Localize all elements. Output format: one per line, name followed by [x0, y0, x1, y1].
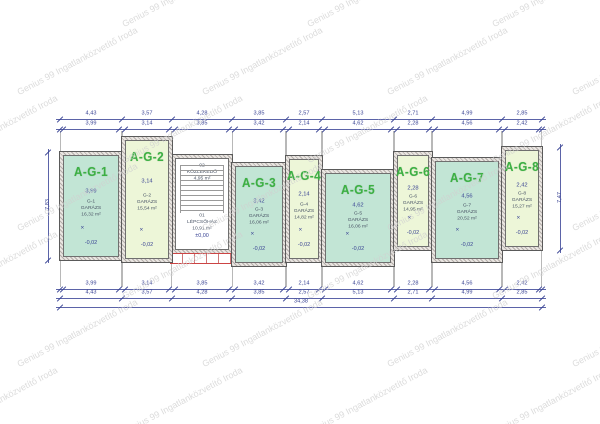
dimension-value: 3,99	[77, 121, 104, 127]
dimension-value: 2,71	[399, 111, 426, 117]
dimension-value: 3,57	[133, 290, 160, 296]
dimension-value: 2,71	[399, 290, 426, 296]
dimension-value: 4,99	[453, 290, 480, 296]
extension-line	[322, 266, 323, 287]
unit-label: A-G-7	[450, 170, 484, 185]
unit-block-a-g-4: A-G-42,14G-4GARÁZS14,82 m²-0,02×	[286, 156, 322, 262]
watermark-text: Genius 99 Ingatlanközvetítő Iroda	[491, 365, 600, 424]
extension-line	[122, 262, 123, 287]
unit-label: A-G-5	[341, 182, 375, 197]
dimension-value: 3,85	[188, 121, 215, 127]
room-code: G-7	[457, 202, 477, 208]
unit-label: A-G-4	[287, 168, 321, 183]
room-name: GARÁZS	[137, 199, 157, 205]
room-name: GARÁZS	[348, 217, 368, 223]
entry-steps	[170, 253, 234, 264]
dimension-value: 2,57	[290, 111, 317, 117]
interior-width-dimension: 4,56	[461, 192, 472, 198]
unit-fill: A-G-62,28G-6GARÁZS14,95 m²-0,02×	[397, 155, 429, 247]
room-label: G-6GARÁZS14,95 m²	[403, 193, 423, 212]
watermark-text: Genius 99 Ingatlanközvetítő Iroda	[0, 0, 59, 29]
extension-line	[502, 250, 503, 287]
unit-label: A-G-8	[505, 159, 539, 174]
extension-line	[60, 131, 61, 152]
dimension-value: 3,14	[133, 281, 160, 287]
door-swing-icon: ×	[299, 226, 303, 233]
room-name: GARÁZS	[81, 205, 101, 211]
room-label: G-1GARÁZS16,32 m²	[81, 198, 101, 217]
floor-level-mark: -0,02	[352, 245, 364, 251]
door-swing-icon: ×	[139, 226, 143, 233]
dimension-value: 3,85	[245, 111, 272, 117]
unit-fill: A-G-74,56G-7GARÁZS20,52 m²-0,02×	[435, 161, 499, 259]
stair-fill: 02 KÖZLEKEDŐ 4,95 m² 01 LÉPCSŐHÁZ 10,91 …	[175, 158, 229, 250]
interior-width-dimension: 4,62	[352, 202, 363, 208]
room-code: G-2	[137, 192, 157, 198]
floor-level-mark: -0,02	[516, 229, 528, 235]
stair-mid-room-name: LÉPCSŐHÁZ	[187, 219, 217, 225]
stair-mid-room-label: 01 LÉPCSŐHÁZ 10,91 m²	[187, 212, 217, 231]
door-swing-icon: ×	[250, 230, 254, 237]
floor-level-mark: -0,02	[85, 239, 97, 245]
dimension-value: 4,28	[188, 111, 215, 117]
extension-line	[232, 266, 233, 287]
extension-line	[502, 131, 503, 147]
dimension-value: 3,42	[245, 121, 272, 127]
watermark-text: Genius 99 Ingatlanközvetítő Iroda	[121, 365, 245, 424]
watermark-text: Genius 99 Ingatlanközvetítő Iroda	[571, 297, 600, 369]
stair-block: 02 KÖZLEKEDŐ 4,95 m² 01 LÉPCSŐHÁZ 10,91 …	[172, 155, 232, 253]
extension-line	[394, 131, 395, 152]
watermark-text: Genius 99 Ingatlanközvetítő Iroda	[571, 161, 600, 233]
interior-width-dimension: 2,14	[298, 191, 309, 197]
dimension-value: 3,42	[245, 281, 272, 287]
extension-line	[432, 262, 433, 287]
unit-block-a-g-3: A-G-33,42G-3GARÁZS16,06 m²-0,02×	[232, 163, 286, 266]
room-area: 16,32 m²	[81, 211, 101, 217]
dimension-chain-line	[56, 129, 546, 130]
watermark-text: Genius 99 Ingatlanközvetítő Iroda	[201, 25, 325, 97]
dimension-value: 2,14	[290, 281, 317, 287]
watermark-text: Genius 99 Ingatlanközvetítő Iroda	[386, 25, 510, 97]
watermark-text: Genius 99 Ingatlanközvetítő Iroda	[0, 365, 59, 424]
room-area: 15,54 m²	[137, 205, 157, 211]
unit-block-a-g-2: A-G-23,14G-2GARÁZS15,54 m²-0,02×	[122, 137, 172, 262]
room-area: 14,95 m²	[403, 206, 423, 212]
total-dimension-value: 34,38	[287, 299, 314, 305]
unit-fill: A-G-13,99G-1GARÁZS16,32 m²-0,02×	[63, 155, 119, 257]
dimension-value: 3,99	[77, 281, 104, 287]
stair-level-mark: ±0,00	[195, 232, 209, 238]
extension-line	[171, 262, 172, 287]
floor-level-mark: -0,02	[298, 241, 310, 247]
dimension-value: 3,85	[188, 281, 215, 287]
room-label: G-2GARÁZS15,54 m²	[137, 192, 157, 211]
unit-label: A-G-2	[130, 149, 164, 164]
unit-label: A-G-6	[396, 164, 430, 179]
extension-line	[541, 250, 542, 287]
dimension-value: 3,85	[245, 290, 272, 296]
dimension-value: 2,28	[399, 121, 426, 127]
floor-level-mark: -0,02	[407, 229, 419, 235]
watermark-text: Genius 99 Ingatlanközvetítő Iroda	[306, 365, 430, 424]
extension-line	[541, 131, 542, 147]
interior-width-dimension: 2,42	[516, 181, 527, 187]
total-dimension-line	[56, 307, 546, 308]
unit-label: A-G-3	[242, 175, 276, 190]
unit-fill: A-G-42,14G-4GARÁZS14,82 m²-0,02×	[289, 159, 319, 259]
watermark-text: Genius 99 Ingatlanközvetítő Iroda	[121, 0, 245, 29]
extension-line	[394, 250, 395, 287]
door-swing-icon: ×	[455, 226, 459, 233]
room-label: G-3GARÁZS16,06 m²	[249, 207, 269, 226]
interior-width-dimension: 3,42	[253, 197, 264, 203]
watermark-text: Genius 99 Ingatlanközvetítő Iroda	[0, 229, 59, 301]
room-area: 16,06 m²	[249, 220, 269, 226]
dimension-value: 4,56	[453, 121, 480, 127]
interior-width-dimension: 3,99	[85, 187, 96, 193]
watermark-text: Genius 99 Ingatlanközvetítő Iroda	[491, 0, 600, 29]
watermark-text: Genius 99 Ingatlanközvetítő Iroda	[0, 93, 59, 165]
floor-level-mark: -0,02	[141, 241, 153, 247]
room-label: G-4GARÁZS14,82 m²	[294, 201, 314, 220]
dimension-value: 4,43	[77, 290, 104, 296]
unit-block-a-g-1: A-G-13,99G-1GARÁZS16,32 m²-0,02×	[60, 152, 122, 260]
watermark-text: Genius 99 Ingatlanközvetítő Iroda	[306, 0, 430, 29]
door-swing-icon: ×	[81, 224, 85, 231]
dimension-value: 2,28	[399, 281, 426, 287]
extension-line	[60, 260, 61, 287]
dimension-value: 3,14	[133, 121, 160, 127]
stair-mid-room-area: 10,91 m²	[187, 225, 217, 231]
dimension-value: 4,56	[453, 281, 480, 287]
dimension-value: 3,57	[133, 111, 160, 117]
dimension-value: 4,62	[344, 281, 371, 287]
room-label: G-8GARÁZS15,27 m²	[512, 191, 532, 210]
door-swing-icon: ×	[407, 214, 411, 221]
interior-width-dimension: 3,14	[141, 177, 152, 183]
room-area: 14,82 m²	[294, 214, 314, 220]
watermark-text: Genius 99 Ingatlanközvetítő Iroda	[16, 25, 140, 97]
floor-level-mark: -0,02	[461, 241, 473, 247]
room-name: GARÁZS	[457, 209, 477, 215]
unit-label: A-G-1	[74, 164, 108, 179]
dimension-value: 2,57	[290, 290, 317, 296]
room-name: GARÁZS	[403, 200, 423, 206]
dimension-value: 4,62	[344, 121, 371, 127]
dimension-value: 4,28	[188, 290, 215, 296]
unit-fill: A-G-33,42G-3GARÁZS16,06 m²-0,02×	[235, 166, 283, 263]
room-code: G-6	[403, 193, 423, 199]
dimension-value: 2,14	[290, 121, 317, 127]
watermark-text: Genius 99 Ingatlanközvetítő Iroda	[571, 25, 600, 97]
unit-block-a-g-6: A-G-62,28G-6GARÁZS14,95 m²-0,02×	[394, 152, 432, 250]
floor-plan-canvas: 02 KÖZLEKEDŐ 4,95 m² 01 LÉPCSŐHÁZ 10,91 …	[0, 0, 600, 424]
dimension-value: 2,85	[508, 111, 535, 117]
unit-block-a-g-8: A-G-82,42G-8GARÁZS15,27 m²-0,02×	[502, 147, 542, 250]
dimension-value: 2,42	[508, 121, 535, 127]
extension-line	[286, 262, 287, 287]
extension-line	[286, 131, 287, 156]
dimension-value: 2,42	[508, 281, 535, 287]
stair-treads-icon	[180, 165, 224, 213]
room-area: 15,27 m²	[512, 204, 532, 210]
dimension-value: 4,43	[77, 111, 104, 117]
interior-width-dimension: 2,28	[407, 184, 418, 190]
dimension-value: 5,13	[344, 111, 371, 117]
extension-line	[322, 131, 323, 170]
room-area: 16,06 m²	[348, 223, 368, 229]
unit-fill: A-G-54,62G-5GARÁZS16,06 m²-0,02×	[325, 173, 391, 263]
dimension-value: 2,85	[508, 290, 535, 296]
door-swing-icon: ×	[346, 230, 350, 237]
room-name: GARÁZS	[294, 208, 314, 214]
unit-block-a-g-7: A-G-74,56G-7GARÁZS20,52 m²-0,02×	[432, 158, 502, 262]
room-label: G-5GARÁZS16,06 m²	[348, 210, 368, 229]
room-label: G-7GARÁZS20,52 m²	[457, 202, 477, 221]
floor-level-mark: -0,02	[253, 245, 265, 251]
unit-block-a-g-5: A-G-54,62G-5GARÁZS16,06 m²-0,02×	[322, 170, 394, 266]
dimension-value: 5,13	[344, 290, 371, 296]
room-code: G-5	[348, 210, 368, 216]
dimension-value: 4,99	[453, 111, 480, 117]
unit-fill: A-G-23,14G-2GARÁZS15,54 m²-0,02×	[125, 140, 169, 259]
extension-line	[432, 131, 433, 158]
room-area: 20,52 m²	[457, 215, 477, 221]
vertical-dimension-value: 7,83	[45, 191, 51, 218]
extension-line	[232, 131, 233, 163]
unit-fill: A-G-82,42G-8GARÁZS15,27 m²-0,02×	[505, 150, 539, 247]
room-code: G-4	[294, 201, 314, 207]
door-swing-icon: ×	[516, 214, 520, 221]
vertical-dimension-value: 7,47	[557, 183, 563, 210]
